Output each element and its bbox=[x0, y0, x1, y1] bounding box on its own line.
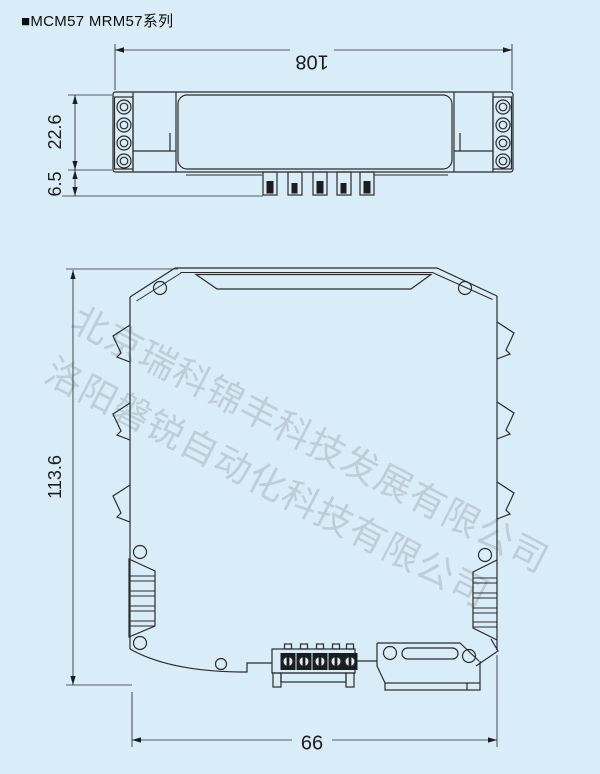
label-slot bbox=[196, 275, 431, 290]
terminal-screw bbox=[297, 653, 312, 670]
dim-22-6-label: 22.6 bbox=[45, 114, 65, 149]
screw-hole bbox=[134, 546, 147, 559]
din-slot bbox=[402, 648, 458, 659]
pin bbox=[337, 172, 351, 195]
side-clip bbox=[113, 485, 130, 522]
pin bbox=[288, 172, 302, 195]
dim-66-label: 66 bbox=[301, 732, 323, 754]
base-hole bbox=[216, 659, 227, 670]
dim-6-5 bbox=[62, 170, 263, 196]
terminal-screw bbox=[313, 653, 328, 670]
top-left-hole bbox=[154, 282, 167, 295]
side-clip bbox=[113, 325, 130, 362]
side-view-housing bbox=[113, 268, 514, 690]
dim-22-6 bbox=[68, 95, 112, 170]
screw-hole bbox=[479, 549, 492, 562]
pin bbox=[313, 172, 327, 195]
side-clip bbox=[113, 403, 130, 440]
top-view-pins bbox=[263, 172, 374, 195]
terminal-screw bbox=[343, 653, 358, 670]
terminal-screw bbox=[329, 653, 344, 670]
dim-108-label: 108 bbox=[295, 51, 328, 73]
pin bbox=[263, 172, 277, 195]
front-terminal-block bbox=[272, 644, 377, 687]
top-right-hole bbox=[459, 282, 472, 295]
side-view: 113.6 66 bbox=[45, 268, 514, 754]
dim-113-6 bbox=[66, 269, 178, 685]
technical-drawing: 108 22.6 6.5 bbox=[0, 0, 600, 774]
side-clip bbox=[497, 402, 514, 439]
top-view: 108 22.6 6.5 bbox=[45, 44, 513, 197]
side-clip bbox=[497, 482, 514, 519]
side-clip bbox=[497, 322, 514, 359]
screw-hole bbox=[134, 637, 147, 650]
din-slider bbox=[385, 683, 480, 690]
top-view-module-body bbox=[113, 92, 513, 175]
pin bbox=[360, 172, 374, 195]
base-hole bbox=[384, 647, 397, 660]
dim-6-5-label: 6.5 bbox=[45, 171, 65, 196]
dim-113-6-label: 113.6 bbox=[45, 455, 65, 499]
terminal-screw bbox=[281, 653, 296, 670]
drawing-page: { "title": "■MCM57 MRM57系列", "colors": {… bbox=[0, 0, 600, 774]
